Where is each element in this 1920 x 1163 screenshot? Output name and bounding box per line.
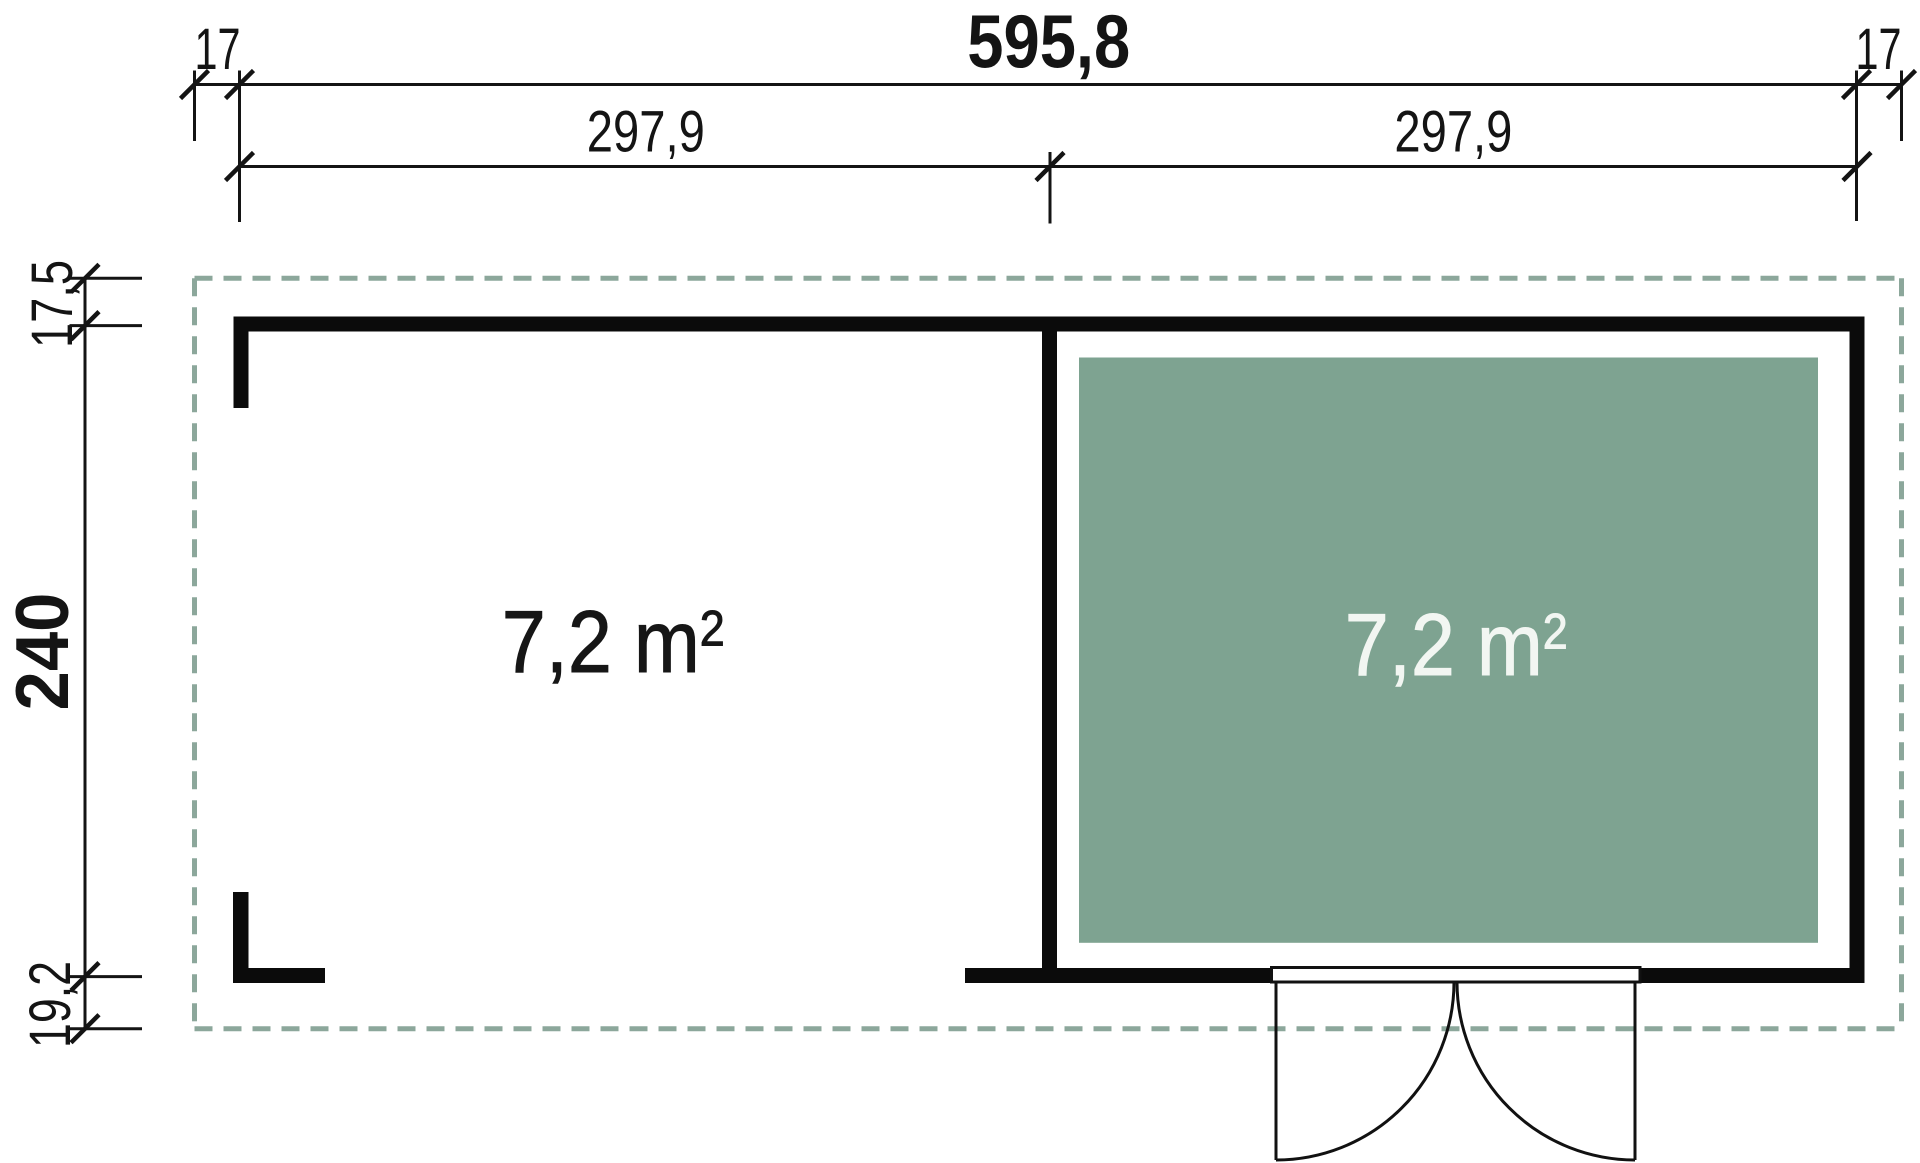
svg-text:297,9: 297,9 — [587, 100, 705, 165]
svg-text:17: 17 — [195, 17, 241, 82]
svg-text:7,2 m2: 7,2 m2 — [1345, 595, 1568, 694]
svg-text:595,8: 595,8 — [967, 0, 1130, 84]
svg-text:17,5: 17,5 — [20, 260, 85, 348]
svg-text:7,2 m2: 7,2 m2 — [502, 592, 725, 691]
svg-text:297,9: 297,9 — [1394, 100, 1512, 165]
svg-text:17: 17 — [1856, 17, 1902, 82]
svg-text:19,2: 19,2 — [18, 961, 83, 1048]
svg-text:240: 240 — [0, 593, 84, 711]
